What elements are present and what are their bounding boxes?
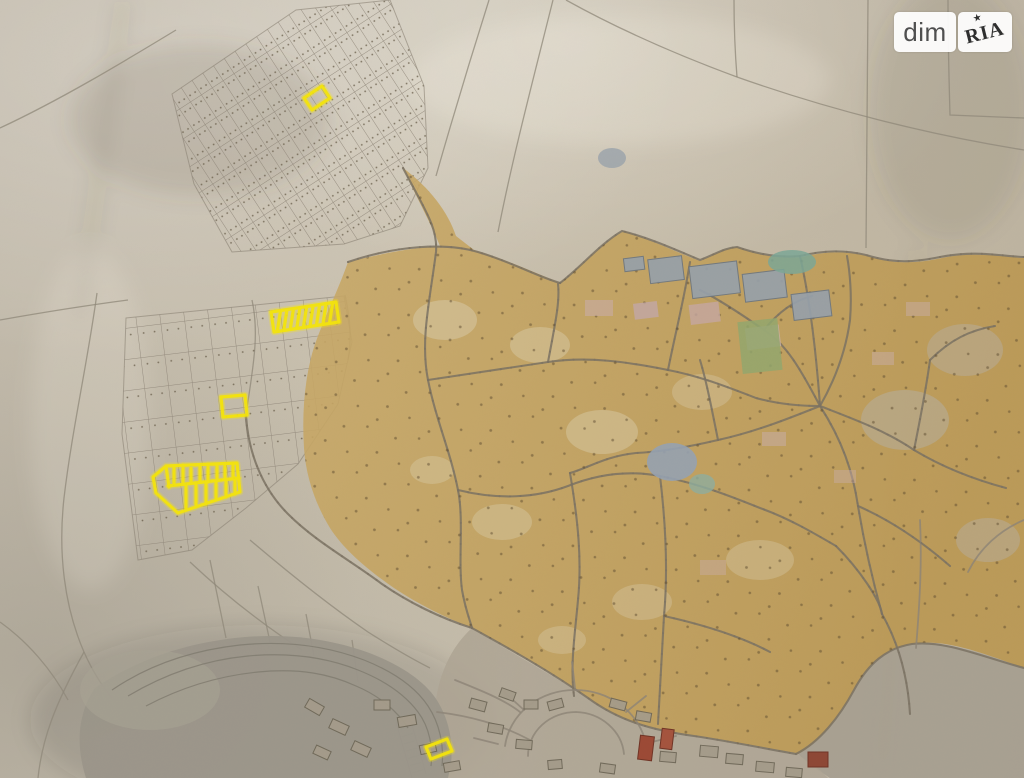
dimria-watermark: dim ★ RIA [894, 12, 1012, 52]
cadastral-map-graphic [0, 0, 1024, 778]
dim-logo-text: dim [903, 17, 946, 48]
photo-grain [0, 0, 1024, 778]
ria-logo: ★ RIA [958, 12, 1012, 52]
ria-logo-text: RIA [963, 18, 1007, 50]
map-photo: dim ★ RIA [0, 0, 1024, 778]
dim-logo: dim [894, 12, 956, 52]
